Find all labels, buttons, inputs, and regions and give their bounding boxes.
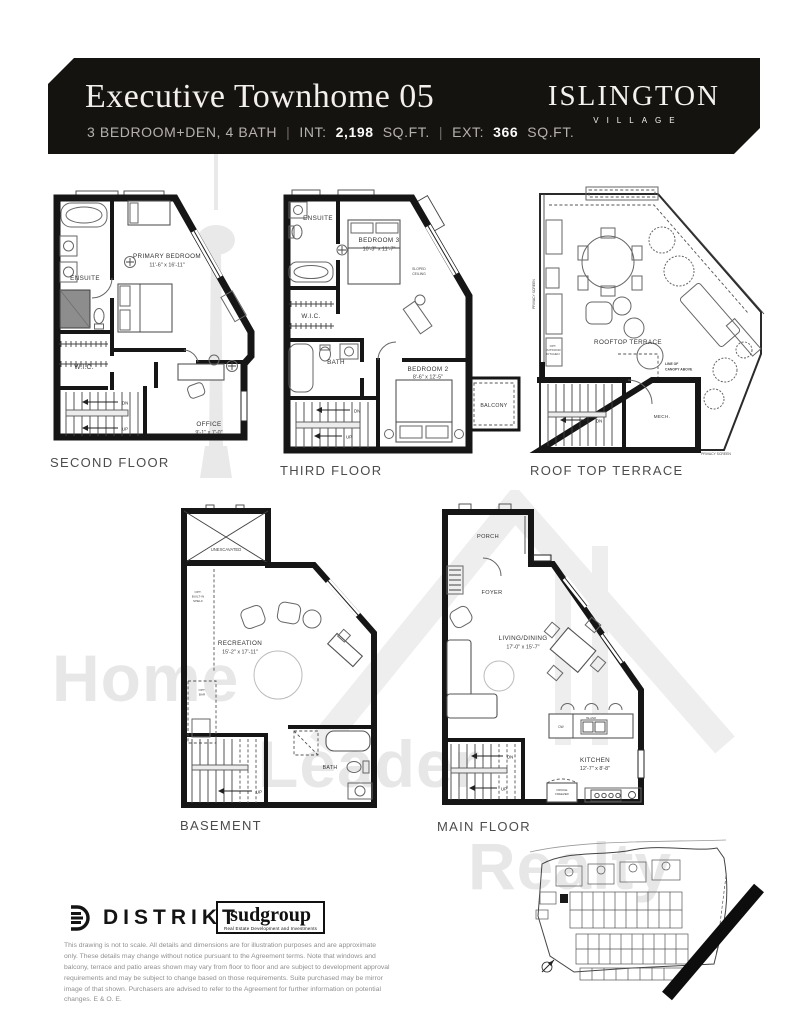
note-sloped-ceiling-1: SLOPED bbox=[412, 267, 426, 271]
note-opt-bar-2: BAR bbox=[199, 693, 206, 697]
dresser-icon bbox=[403, 295, 432, 334]
basement-plan: UNEXCAVATED OPT. BUILT-IN SHELF OPT. BAR… bbox=[178, 503, 393, 833]
main-floor-plan: PORCH FOYER LIVING/DINING 17'-0" x 15'-7… bbox=[435, 500, 650, 834]
stairs bbox=[451, 744, 515, 800]
sofa-icons bbox=[447, 604, 514, 718]
room-dims-recreation: 15'-2" x 17'-11" bbox=[222, 650, 258, 656]
corner-stripe bbox=[655, 878, 770, 1003]
exterior-value: 366 bbox=[493, 124, 518, 140]
lounge-furniture-icons bbox=[586, 282, 761, 369]
sudgroup-wordmark: sudgroup bbox=[224, 905, 317, 925]
roof-top-terrace-plan: ROOFTOP TERRACE MECH. LINE OF CANOPY ABO… bbox=[528, 184, 766, 478]
room-dims-living-dining: 17'-0" x 15'-7" bbox=[506, 645, 539, 651]
room-label-wic: W.I.C. bbox=[74, 364, 93, 371]
exterior-label: EXT: bbox=[452, 124, 484, 140]
floor-label-third: THIRD FLOOR bbox=[280, 463, 528, 478]
distrikt-logo: DISTRIKT bbox=[64, 903, 240, 933]
third-floor-plan: ENSUITE BEDROOM 3 10'-3" x 11'-7" W.I.C.… bbox=[278, 184, 528, 478]
stair-label-up: UP bbox=[256, 790, 262, 795]
room-label-balcony: BALCONY bbox=[480, 403, 507, 409]
room-label-unexcavated: UNEXCAVATED bbox=[211, 547, 241, 552]
room-label-ensuite: ENSUITE bbox=[70, 275, 100, 282]
note-opt-bar-1: OPT. bbox=[199, 688, 206, 692]
stair-label-dn: DN bbox=[122, 401, 128, 406]
room-label-recreation: RECREATION bbox=[218, 640, 262, 647]
interior-label: INT: bbox=[299, 124, 326, 140]
room-label-porch: PORCH bbox=[477, 534, 499, 540]
interior-unit: SQ.FT. bbox=[383, 124, 430, 140]
distrikt-d-icon bbox=[64, 903, 94, 933]
shower-icon bbox=[60, 290, 90, 328]
label-dw: DW bbox=[558, 725, 563, 729]
room-label-bedroom3: BEDROOM 3 bbox=[359, 237, 400, 244]
highlighted-unit bbox=[560, 894, 568, 903]
porch bbox=[445, 504, 531, 576]
sudgroup-tagline: Real Estate Development and Investments bbox=[224, 926, 317, 931]
note-sloped-ceiling-2: CEILING bbox=[412, 272, 426, 276]
room-dims-bedroom3: 10'-3" x 11'-7" bbox=[363, 247, 396, 253]
separator: | bbox=[439, 124, 443, 140]
stair-label-dn: DN bbox=[507, 755, 513, 760]
note-opt-kitchen-3: KITCHEN bbox=[546, 352, 559, 356]
note-canopy-2: CANOPY ABOVE bbox=[665, 368, 693, 372]
canopy-dashed-line bbox=[549, 205, 748, 313]
interior-value: 2,198 bbox=[336, 124, 374, 140]
room-label-rooftop-terrace: ROOFTOP TERRACE bbox=[594, 339, 662, 346]
stairs-mech-block bbox=[540, 380, 698, 450]
brand-subname: VILLAGE bbox=[548, 116, 720, 125]
tub-icon bbox=[289, 262, 333, 282]
label-fridge-2: FREEZER bbox=[555, 792, 569, 796]
foyer-closet bbox=[447, 566, 463, 594]
room-label-primary-bedroom: PRIMARY BEDROOM bbox=[133, 253, 201, 260]
sudgroup-logo: sudgroup Real Estate Development and Inv… bbox=[216, 901, 325, 934]
exterior-unit: SQ.FT. bbox=[527, 124, 574, 140]
note-privacy-screen-bottom: PRIVACY SCREEN bbox=[701, 452, 731, 456]
north-arrow-icon bbox=[542, 960, 554, 972]
note-canopy-1: LINE OF bbox=[665, 362, 678, 366]
room-label-office: OFFICE bbox=[196, 421, 221, 428]
note-opt-shelf-3: SHELF bbox=[193, 599, 203, 603]
room-dims-office: 9'-1" x 7'-0" bbox=[195, 430, 222, 436]
note-opt-shelf-1: OPT. bbox=[195, 590, 202, 594]
note-privacy-screen-left: PRIVACY SCREEN bbox=[532, 279, 536, 309]
room-dims-kitchen: 12'-7" x 8'-8" bbox=[580, 766, 610, 772]
bed-icon-2 bbox=[385, 380, 464, 442]
unexcavated-box bbox=[184, 505, 268, 563]
header-bar: Executive Townhome 05 3 BEDROOM+DEN, 4 B… bbox=[48, 58, 760, 154]
bath-fixtures bbox=[289, 344, 358, 392]
tub-icon bbox=[61, 203, 107, 227]
stairs bbox=[192, 739, 256, 803]
room-label-kitchen: KITCHEN bbox=[580, 757, 610, 764]
floor-label-second: SECOND FLOOR bbox=[50, 455, 258, 470]
floor-label-basement: BASEMENT bbox=[180, 818, 393, 833]
toilet-icon bbox=[289, 225, 302, 239]
room-dims-primary-bedroom: 11'-6" x 16'-11" bbox=[149, 263, 184, 269]
kitchen-island bbox=[549, 704, 633, 739]
room-label-living-dining: LIVING/DINING bbox=[499, 635, 548, 642]
dining-table-icon bbox=[578, 228, 642, 296]
floor-label-main: MAIN FLOOR bbox=[437, 819, 650, 834]
stair-label-up: UP bbox=[122, 427, 128, 432]
specs-text: 3 BEDROOM+DEN, 4 BATH bbox=[87, 124, 277, 140]
room-label-bath: BATH bbox=[327, 359, 345, 366]
floor-label-rooftop: ROOF TOP TERRACE bbox=[530, 463, 766, 478]
stair-label-up: UP bbox=[501, 787, 507, 792]
separator: | bbox=[286, 124, 290, 140]
note-opt-shelf-2: BUILT-IN bbox=[192, 595, 205, 599]
label-island: ISLAND bbox=[586, 716, 596, 720]
stair-label-dn: DN bbox=[354, 409, 360, 414]
room-label-foyer: FOYER bbox=[481, 590, 502, 596]
brochure-page: Home Leader Realty Executive Townhome 05… bbox=[0, 0, 808, 1030]
room-label-mech: MECH. bbox=[654, 414, 671, 419]
toilet-icon bbox=[94, 309, 104, 330]
unit-specs: 3 BEDROOM+DEN, 4 BATH | INT: 2,198 SQ.FT… bbox=[87, 124, 574, 140]
disclaimer-text: This drawing is not to scale. All detail… bbox=[64, 941, 390, 1006]
room-dims-bedroom2: 8'-6" x 12'-5" bbox=[413, 375, 443, 381]
stair-label-dn: DN bbox=[596, 419, 602, 424]
stair-label-up: UP bbox=[346, 435, 352, 440]
second-floor-plan: ENSUITE PRIMARY BEDROOM 11'-6" x 16'-11"… bbox=[48, 186, 258, 470]
brand-name: ISLINGTON bbox=[548, 80, 720, 113]
room-label-bedroom2: BEDROOM 2 bbox=[408, 366, 449, 373]
page-title: Executive Townhome 05 bbox=[85, 78, 434, 116]
islington-village-logo: ISLINGTON VILLAGE bbox=[548, 80, 720, 125]
canopy-outline bbox=[618, 354, 658, 380]
room-label-ensuite: ENSUITE bbox=[303, 215, 333, 222]
room-label-wic: W.I.C. bbox=[301, 313, 320, 320]
room-label-bath: BATH bbox=[323, 765, 338, 771]
